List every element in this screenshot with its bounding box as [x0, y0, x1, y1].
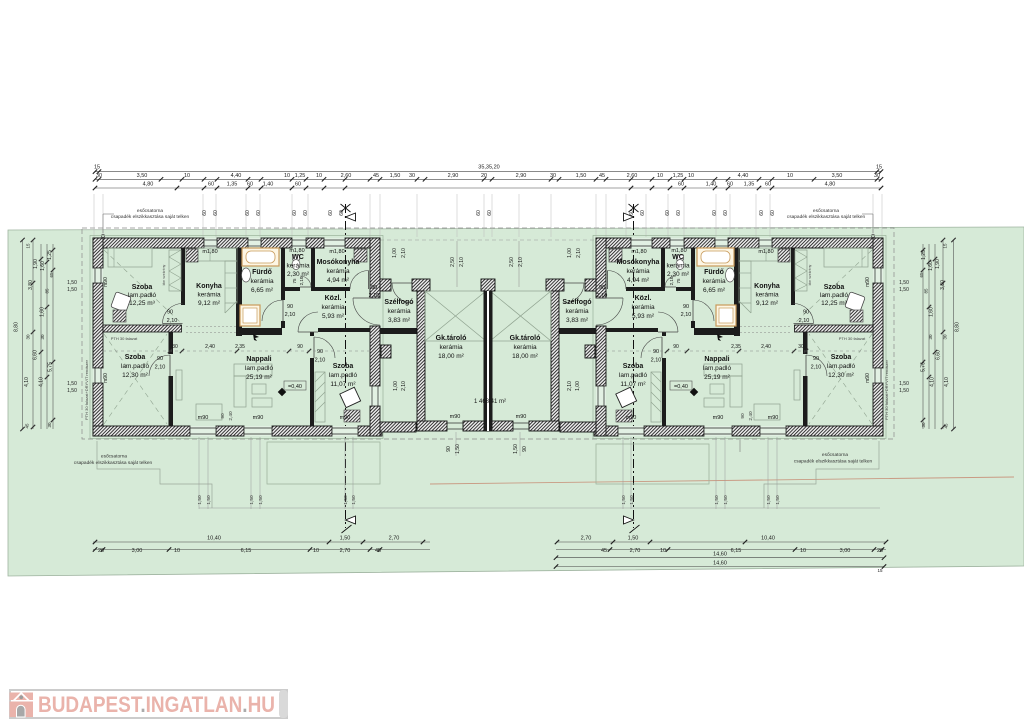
svg-text:Szoba: Szoba — [623, 363, 644, 370]
svg-text:m90: m90 — [450, 414, 461, 420]
svg-text:90: 90 — [740, 413, 746, 419]
svg-text:10: 10 — [284, 173, 290, 179]
svg-text:10: 10 — [688, 173, 694, 179]
svg-text:Szoba: Szoba — [125, 354, 146, 361]
svg-text:m90: m90 — [103, 373, 109, 383]
svg-text:kerámia: kerámia — [197, 292, 221, 299]
svg-text:2,10: 2,10 — [155, 365, 166, 371]
svg-text:m90: m90 — [516, 414, 527, 420]
svg-text:2,70: 2,70 — [581, 536, 592, 542]
svg-text:10,40: 10,40 — [207, 536, 221, 542]
svg-text:90: 90 — [220, 413, 226, 419]
svg-text:2,10: 2,10 — [518, 257, 524, 267]
svg-text:20: 20 — [481, 173, 487, 179]
svg-text:m90: m90 — [865, 277, 871, 287]
svg-text:Mosókonyha: Mosókonyha — [317, 259, 360, 266]
svg-text:Nappali: Nappali — [704, 356, 729, 363]
svg-text:5,93 m²: 5,93 m² — [632, 313, 655, 320]
svg-text:85: 85 — [924, 288, 929, 294]
svg-text:60: 60 — [256, 210, 262, 216]
svg-text:25,19 m²: 25,19 m² — [246, 374, 272, 381]
svg-text:2,70: 2,70 — [340, 548, 351, 554]
svg-text:1,50: 1,50 — [67, 381, 77, 387]
svg-text:30: 30 — [928, 334, 933, 340]
svg-text:10,40: 10,40 — [761, 536, 775, 542]
svg-text:Szélfogó: Szélfogó — [562, 299, 591, 306]
svg-text:1,00: 1,00 — [567, 248, 573, 258]
svg-text:45: 45 — [373, 173, 379, 179]
svg-text:1,50: 1,50 — [249, 495, 255, 505]
svg-text:30: 30 — [409, 173, 415, 179]
svg-text:Nappali: Nappali — [246, 356, 271, 363]
svg-text:10: 10 — [316, 173, 322, 179]
svg-text:2,10: 2,10 — [285, 312, 296, 318]
svg-text:10: 10 — [787, 173, 793, 179]
svg-text:2,10: 2,10 — [811, 365, 822, 371]
svg-text:1,50: 1,50 — [343, 495, 349, 505]
svg-text:45: 45 — [944, 423, 949, 429]
svg-text:30: 30 — [172, 344, 178, 350]
svg-text:90: 90 — [522, 446, 528, 452]
svg-text:10: 10 — [660, 548, 666, 554]
svg-text:90: 90 — [446, 446, 452, 452]
svg-text:75: 75 — [676, 278, 681, 284]
svg-text:30: 30 — [550, 173, 556, 179]
svg-text:Szoba: Szoba — [333, 363, 354, 370]
svg-text:2,10: 2,10 — [576, 248, 582, 258]
svg-text:PTH 30 falazat: PTH 30 falazat — [111, 336, 138, 341]
svg-text:2,10: 2,10 — [459, 257, 465, 267]
svg-text:Gk.tároló: Gk.tároló — [510, 335, 541, 342]
svg-text:12,25 m³: 12,25 m³ — [821, 300, 847, 307]
svg-text:m90: m90 — [713, 415, 724, 421]
svg-text:1,50: 1,50 — [67, 388, 77, 394]
svg-text:3,80: 3,80 — [940, 280, 946, 290]
svg-text:90: 90 — [371, 285, 377, 291]
svg-text:6,15: 6,15 — [241, 548, 252, 554]
svg-text:85: 85 — [45, 288, 50, 294]
svg-text:1,90: 1,90 — [935, 259, 941, 269]
svg-text:4,94 m²: 4,94 m² — [327, 277, 350, 284]
svg-text:12,25 m³: 12,25 m³ — [129, 300, 155, 307]
svg-text:m90: m90 — [253, 415, 264, 421]
svg-text:1,50: 1,50 — [899, 381, 909, 387]
svg-text:lam.padló: lam.padló — [703, 365, 732, 372]
svg-text:90: 90 — [287, 304, 293, 310]
svg-text:4,10: 4,10 — [930, 377, 936, 387]
svg-text:ktm szekrény: ktm szekrény — [808, 264, 812, 285]
svg-text:kerámia: kerámia — [250, 278, 274, 285]
svg-text:2,40: 2,40 — [761, 344, 771, 350]
svg-text:60: 60 — [723, 210, 729, 216]
svg-text:Közl.: Közl. — [635, 295, 652, 302]
svg-text:m1,80: m1,80 — [329, 249, 344, 255]
svg-text:1,00: 1,00 — [575, 381, 581, 391]
svg-text:4,10: 4,10 — [24, 377, 30, 387]
svg-text:60: 60 — [640, 210, 646, 216]
svg-text:90: 90 — [599, 285, 605, 291]
svg-text:1,50: 1,50 — [513, 444, 519, 454]
svg-text:1,50: 1,50 — [390, 173, 401, 179]
svg-text:2,10: 2,10 — [401, 381, 407, 391]
svg-text:2,35: 2,35 — [235, 344, 245, 350]
svg-text:5,75: 5,75 — [48, 362, 54, 372]
svg-text:6,15: 6,15 — [731, 548, 742, 554]
svg-text:1,50: 1,50 — [899, 280, 909, 286]
svg-text:1,50: 1,50 — [340, 536, 351, 542]
svg-text:2,40: 2,40 — [748, 411, 754, 421]
svg-text:2,10: 2,10 — [299, 276, 304, 285]
svg-text:WC: WC — [292, 254, 304, 261]
svg-text:4,94 m²: 4,94 m² — [627, 277, 650, 284]
svg-text:4,10: 4,10 — [944, 377, 950, 387]
svg-text:30: 30 — [47, 422, 52, 428]
svg-text:5,93 m²: 5,93 m² — [322, 313, 345, 320]
svg-text:3,00: 3,00 — [840, 548, 851, 554]
svg-text:1,50: 1,50 — [714, 495, 720, 505]
svg-text:1,50: 1,50 — [775, 495, 781, 505]
svg-text:Közl.: Közl. — [325, 295, 342, 302]
svg-text:kerámia: kerámia — [387, 308, 411, 315]
svg-text:Fürdő: Fürdő — [252, 269, 272, 276]
svg-text:m1,80: m1,80 — [758, 249, 773, 255]
svg-text:90: 90 — [167, 310, 173, 316]
svg-text:2,70: 2,70 — [389, 536, 400, 542]
svg-text:Szoba: Szoba — [132, 284, 153, 291]
svg-text:15: 15 — [26, 243, 31, 249]
svg-text:60: 60 — [476, 210, 482, 216]
svg-text:90: 90 — [673, 344, 679, 350]
svg-text:csapadék elszikkasztása saját: csapadék elszikkasztása saját telken — [787, 214, 866, 220]
svg-text:35,35,20: 35,35,20 — [478, 165, 499, 171]
svg-text:lam.padló: lam.padló — [619, 372, 648, 379]
svg-text:PTH 30 falazat+DRYVIT rendszer: PTH 30 falazat+DRYVIT rendszer — [884, 359, 889, 420]
svg-text:10: 10 — [800, 548, 806, 554]
svg-text:45: 45 — [599, 173, 605, 179]
svg-text:m90: m90 — [626, 415, 637, 421]
svg-text:1,25: 1,25 — [295, 173, 306, 179]
svg-text:60: 60 — [678, 182, 684, 188]
svg-text:csapadék elszikkasztása saját: csapadék elszikkasztása saját telken — [74, 460, 153, 466]
svg-text:30: 30 — [943, 334, 948, 340]
svg-text:kerámia: kerámia — [666, 263, 690, 270]
svg-text:1,35: 1,35 — [744, 182, 755, 188]
svg-text:2,10: 2,10 — [799, 318, 810, 324]
svg-text:2,40: 2,40 — [205, 344, 215, 350]
svg-text:15: 15 — [943, 243, 948, 249]
svg-text:30: 30 — [40, 334, 45, 340]
svg-text:kerámia: kerámia — [755, 292, 779, 299]
svg-text:1,50: 1,50 — [629, 495, 635, 505]
svg-text:1,25: 1,25 — [921, 250, 927, 260]
svg-text:1,00: 1,00 — [392, 248, 398, 258]
svg-text:1,50: 1,50 — [67, 287, 77, 293]
svg-text:2,70: 2,70 — [630, 548, 641, 554]
svg-text:60: 60 — [208, 182, 214, 188]
svg-text:3,50: 3,50 — [137, 173, 148, 179]
svg-text:lam.padló: lam.padló — [128, 292, 157, 299]
svg-text:Mosókonyha: Mosókonyha — [617, 259, 660, 266]
svg-text:Szoba: Szoba — [824, 284, 845, 291]
svg-text:m1,80: m1,80 — [671, 248, 686, 254]
svg-text:m90: m90 — [340, 415, 351, 421]
svg-text:2,90: 2,90 — [516, 173, 527, 179]
svg-text:kerámia: kerámia — [286, 263, 310, 270]
svg-text:PTH 30 falazat+DRYVIT rendszer: PTH 30 falazat+DRYVIT rendszer — [84, 359, 89, 420]
svg-text:kerámia: kerámia — [565, 308, 589, 315]
svg-text:esőcsatorna: esőcsatorna — [813, 208, 839, 214]
svg-text:10: 10 — [184, 173, 190, 179]
svg-text:18,00 m²: 18,00 m² — [512, 353, 538, 360]
svg-text:m1,80: m1,80 — [202, 249, 217, 255]
svg-text:14,60: 14,60 — [713, 561, 727, 567]
svg-text:csapadék elszikkasztása saját: csapadék elszikkasztása saját telken — [111, 214, 190, 220]
svg-text:1,90: 1,90 — [33, 259, 39, 269]
svg-text:90: 90 — [653, 349, 659, 355]
svg-text:1,50: 1,50 — [576, 173, 587, 179]
svg-text:3,50: 3,50 — [832, 173, 843, 179]
svg-text:2,40: 2,40 — [228, 411, 234, 421]
svg-text:lam.padló: lam.padló — [820, 292, 849, 299]
svg-text:1,50: 1,50 — [899, 287, 909, 293]
svg-text:1,50: 1,50 — [206, 495, 212, 505]
svg-text:2,10: 2,10 — [369, 293, 380, 299]
svg-text:90: 90 — [813, 356, 819, 362]
svg-text:3,00: 3,00 — [132, 548, 143, 554]
svg-text:1,50: 1,50 — [899, 388, 909, 394]
svg-text:14,60: 14,60 — [713, 552, 727, 558]
svg-text:3,83 m²: 3,83 m² — [566, 317, 589, 324]
svg-text:PTH 30 falazat: PTH 30 falazat — [839, 336, 866, 341]
svg-text:1,50: 1,50 — [351, 495, 357, 505]
svg-text:90: 90 — [317, 349, 323, 355]
svg-text:2,10: 2,10 — [681, 312, 692, 318]
svg-text:ktm szekrény: ktm szekrény — [162, 264, 166, 285]
svg-text:1,60: 1,60 — [40, 261, 46, 271]
svg-text:9,12 m²: 9,12 m² — [756, 300, 779, 307]
svg-text:9,12 m²: 9,12 m² — [198, 300, 221, 307]
svg-text:4,80: 4,80 — [143, 182, 154, 188]
svg-text:2,10: 2,10 — [597, 293, 608, 299]
svg-text:1,50: 1,50 — [766, 495, 772, 505]
svg-text:Konyha: Konyha — [754, 283, 780, 290]
svg-text:30: 30 — [26, 334, 31, 340]
svg-text:m1,80: m1,80 — [289, 248, 304, 254]
svg-text:6,65 m²: 6,65 m² — [703, 287, 726, 294]
svg-text:18,00 m²: 18,00 m² — [438, 353, 464, 360]
svg-text:lam.padló: lam.padló — [827, 363, 856, 370]
svg-text:m1,80: m1,80 — [631, 249, 646, 255]
svg-text:60: 60 — [487, 210, 493, 216]
svg-text:1,50: 1,50 — [723, 495, 729, 505]
svg-text:11,07 m²: 11,07 m² — [330, 381, 356, 388]
svg-text:3,80: 3,80 — [28, 280, 34, 290]
svg-text:30: 30 — [921, 422, 926, 428]
svg-text:1,50: 1,50 — [621, 495, 627, 505]
svg-text:lam.padló: lam.padló — [245, 365, 274, 372]
svg-text:60: 60 — [765, 182, 771, 188]
svg-text:m90: m90 — [103, 277, 109, 287]
svg-text:lam.padló: lam.padló — [329, 372, 358, 379]
svg-text:kerámia: kerámia — [321, 304, 345, 311]
svg-text:1,50: 1,50 — [67, 280, 77, 286]
svg-text:4,40: 4,40 — [231, 173, 242, 179]
svg-text:60: 60 — [770, 210, 776, 216]
svg-text:60: 60 — [213, 210, 219, 216]
svg-text:1,40: 1,40 — [263, 182, 274, 188]
svg-text:5,75: 5,75 — [921, 362, 927, 372]
svg-text:4,10: 4,10 — [39, 377, 45, 387]
svg-text:2,35: 2,35 — [731, 344, 741, 350]
svg-text:45: 45 — [601, 548, 607, 554]
svg-text:csapadék elszikkasztása saját: csapadék elszikkasztása saját telken — [794, 459, 873, 465]
svg-text:60: 60 — [295, 182, 301, 188]
svg-text:m90: m90 — [198, 415, 209, 421]
svg-text:Szoba: Szoba — [831, 354, 852, 361]
svg-text:75: 75 — [292, 278, 297, 284]
svg-text:1,40: 1,40 — [706, 182, 717, 188]
svg-text:kerámia: kerámia — [626, 268, 650, 275]
svg-text:BUDAPEST.INGATLAN.HU: BUDAPEST.INGATLAN.HU — [38, 692, 275, 717]
svg-text:60: 60 — [245, 210, 251, 216]
svg-text:2,10: 2,10 — [651, 358, 662, 364]
svg-text:lam.padló: lam.padló — [121, 363, 150, 370]
svg-text:1,60: 1,60 — [929, 307, 935, 317]
svg-text:m90: m90 — [865, 373, 871, 383]
svg-text:60: 60 — [292, 210, 298, 216]
svg-text:m90: m90 — [768, 415, 779, 421]
svg-text:=0,40: =0,40 — [674, 384, 688, 390]
svg-text:1,00: 1,00 — [393, 381, 399, 391]
svg-text:10: 10 — [657, 173, 663, 179]
svg-text:1,60: 1,60 — [40, 307, 46, 317]
svg-text:kerámia: kerámia — [631, 304, 655, 311]
svg-text:60: 60 — [676, 210, 682, 216]
svg-text:1,35: 1,35 — [227, 182, 238, 188]
svg-text:kerámia: kerámia — [439, 344, 463, 351]
svg-text:esőcsatorna: esőcsatorna — [137, 208, 163, 214]
svg-text:1 468,41 m²: 1 468,41 m² — [474, 399, 506, 405]
svg-text:60: 60 — [665, 210, 671, 216]
svg-text:65: 65 — [919, 272, 924, 278]
svg-text:6,65 m²: 6,65 m² — [251, 287, 274, 294]
svg-text:2,50: 2,50 — [509, 257, 515, 267]
svg-text:2,10: 2,10 — [567, 381, 573, 391]
svg-text:1,50: 1,50 — [258, 495, 264, 505]
svg-text:Gk.tároló: Gk.tároló — [436, 335, 467, 342]
svg-text:WC: WC — [672, 254, 684, 261]
svg-text:90: 90 — [683, 304, 689, 310]
svg-text:1,50: 1,50 — [628, 536, 639, 542]
svg-text:60: 60 — [712, 210, 718, 216]
svg-text:60: 60 — [303, 210, 309, 216]
svg-text:30: 30 — [798, 344, 804, 350]
svg-text:kerámia: kerámia — [326, 268, 350, 275]
svg-text:10: 10 — [174, 548, 180, 554]
svg-text:90: 90 — [157, 356, 163, 362]
svg-text:65: 65 — [49, 272, 54, 278]
svg-text:60: 60 — [759, 210, 765, 216]
svg-text:1,50: 1,50 — [197, 495, 203, 505]
svg-text:=0,40: =0,40 — [288, 384, 302, 390]
svg-text:6,60: 6,60 — [33, 350, 39, 360]
svg-text:2,10: 2,10 — [315, 358, 326, 364]
svg-text:90: 90 — [803, 310, 809, 316]
svg-text:11,07 m²: 11,07 m² — [620, 381, 646, 388]
svg-text:Szélfogó: Szélfogó — [384, 299, 413, 306]
svg-text:2,10: 2,10 — [167, 318, 178, 324]
svg-text:60: 60 — [328, 210, 334, 216]
svg-text:8,80: 8,80 — [14, 322, 20, 332]
svg-text:esőcsatorna: esőcsatorna — [101, 454, 127, 460]
svg-text:8,80: 8,80 — [955, 322, 961, 332]
svg-text:12,30 m²: 12,30 m² — [122, 372, 148, 379]
svg-text:45: 45 — [25, 423, 30, 429]
svg-text:Konyha: Konyha — [196, 283, 222, 290]
svg-text:1,60: 1,60 — [928, 261, 934, 271]
svg-text:Fürdő: Fürdő — [704, 269, 724, 276]
svg-text:4,80: 4,80 — [825, 182, 836, 188]
svg-text:6,60: 6,60 — [936, 350, 942, 360]
svg-text:60: 60 — [202, 210, 208, 216]
svg-text:1,25: 1,25 — [673, 173, 684, 179]
svg-text:10: 10 — [313, 548, 319, 554]
svg-text:1,25: 1,25 — [47, 250, 53, 260]
svg-text:25,19 m²: 25,19 m² — [704, 374, 730, 381]
svg-text:2,90: 2,90 — [448, 173, 459, 179]
svg-text:kerámia: kerámia — [702, 278, 726, 285]
svg-text:12,30 m²: 12,30 m² — [828, 372, 854, 379]
svg-text:2,10: 2,10 — [401, 248, 407, 258]
svg-text:3,83 m²: 3,83 m² — [388, 317, 411, 324]
svg-text:4,40: 4,40 — [738, 173, 749, 179]
svg-text:90: 90 — [297, 344, 303, 350]
svg-text:2,50: 2,50 — [450, 257, 456, 267]
svg-text:kerámia: kerámia — [513, 344, 537, 351]
svg-text:2,10: 2,10 — [669, 276, 674, 285]
svg-text:esőcsatorna: esőcsatorna — [822, 452, 848, 458]
